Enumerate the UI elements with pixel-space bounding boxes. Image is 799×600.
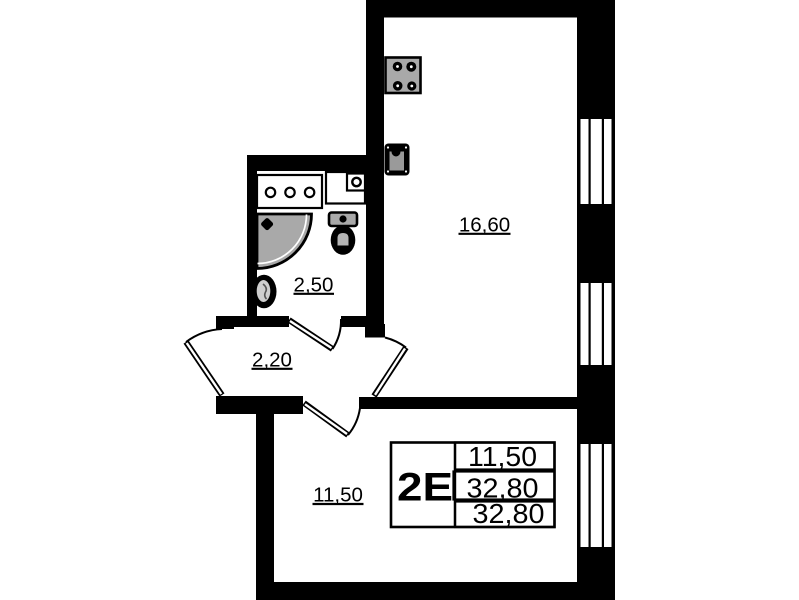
- svg-text:2E: 2E: [397, 466, 453, 510]
- svg-text:11,50: 11,50: [468, 441, 537, 472]
- svg-text:32,80: 32,80: [473, 498, 545, 529]
